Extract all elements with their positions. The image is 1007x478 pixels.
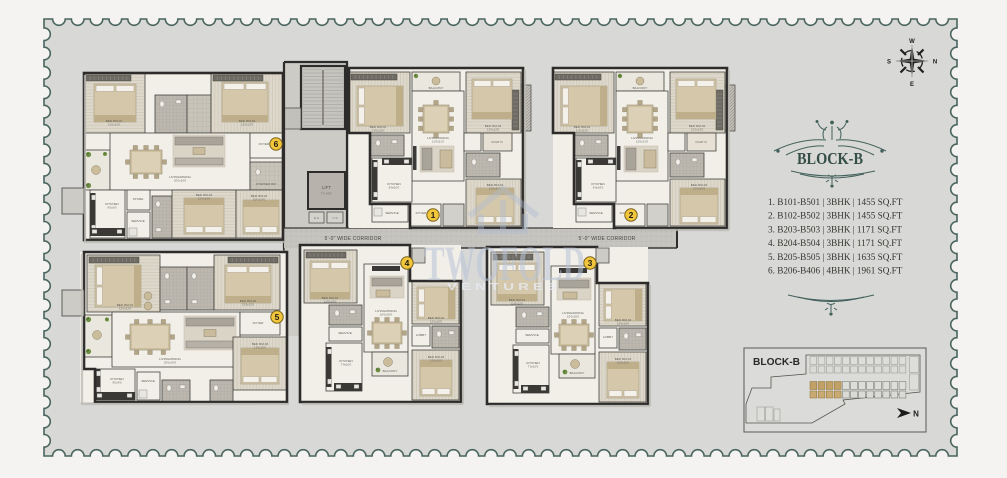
svg-text:6: 6 [274,139,279,149]
svg-text:11'0x21'0: 11'0x21'0 [636,140,648,144]
svg-text:FOYER: FOYER [416,211,427,215]
svg-text:6. B206-B406 | 4BHK | 1961 SQ.: 6. B206-B406 | 4BHK | 1961 SQ.FT [768,266,903,276]
svg-text:5’-0" WIDE CORRIDOR: 5’-0" WIDE CORRIDOR [325,236,382,242]
svg-text:5’-0" WIDE CORRIDOR: 5’-0" WIDE CORRIDOR [579,236,636,242]
svg-text:N: N [933,60,937,66]
svg-text:8'0x10'0: 8'0x10'0 [389,186,400,190]
svg-text:10'0x10'0: 10'0x10'0 [253,198,266,202]
svg-text:12'0x10'0: 12'0x10'0 [617,361,630,365]
svg-text:11'0x10'0: 11'0x10'0 [254,346,266,350]
svg-text:7'1"x9'0": 7'1"x9'0" [321,192,332,196]
svg-text:12'0x10'0: 12'0x10'0 [198,197,211,201]
svg-text:1: 1 [431,210,436,220]
svg-text:9'0x9'0: 9'0x9'0 [113,381,122,385]
svg-text:SERVICE: SERVICE [338,331,352,335]
svg-text:BALCONY: BALCONY [570,371,585,375]
svg-text:SERVICE: SERVICE [141,379,155,383]
svg-text:BALCONY: BALCONY [429,86,444,90]
svg-text:10'0x20'0: 10'0x20'0 [567,315,580,319]
svg-text:SERVICE: SERVICE [589,211,603,215]
svg-text:BLOCK-B: BLOCK-B [753,356,800,368]
svg-text:LOBBY: LOBBY [416,333,426,337]
svg-text:FOYER: FOYER [253,321,264,325]
svg-text:4: 4 [405,258,410,268]
svg-text:BALCONY: BALCONY [633,86,648,90]
svg-text:20'0x10'0: 20'0x10'0 [164,361,177,365]
svg-text:11'0x12'0: 11'0x12'0 [108,123,120,127]
svg-text:3. B203-B503 | 3BHK | 1171 SQ.: 3. B203-B503 | 3BHK | 1171 SQ.FT [768,224,902,234]
svg-text:LIFT: LIFT [322,185,331,190]
svg-text:12'0x10'0: 12'0x10'0 [430,359,443,363]
svg-text:11'0x21'0: 11'0x21'0 [432,140,444,144]
svg-text:12'0x12'0: 12'0x12'0 [691,128,704,132]
svg-text:2. B102-B502 | 3BHK | 1455 SQ.: 2. B102-B502 | 3BHK | 1455 SQ.FT [768,211,903,221]
svg-text:10'0x20'0: 10'0x20'0 [380,313,393,317]
svg-text:12'0x12'0: 12'0x12'0 [119,307,132,311]
svg-text:W: W [909,39,915,45]
svg-text:SERVICE: SERVICE [385,211,399,215]
svg-text:2: 2 [629,210,634,220]
svg-text:12'0x12'0: 12'0x12'0 [487,128,500,132]
svg-text:FOYER: FOYER [259,142,270,146]
svg-text:4. B204-B504 | 3BHK | 1171 SQ.: 4. B204-B504 | 3BHK | 1171 SQ.FT [768,238,902,248]
svg-text:12'0x12'0: 12'0x12'0 [242,303,255,307]
svg-text:BLOCK-B: BLOCK-B [797,149,863,168]
svg-text:COAT D: COAT D [695,140,707,144]
svg-text:3: 3 [588,258,593,268]
svg-text:11'0x12'0: 11'0x12'0 [576,129,588,133]
svg-text:1. B101-B501 | 3BHK | 1455 SQ.: 1. B101-B501 | 3BHK | 1455 SQ.FT [768,197,903,207]
svg-text:7'0x10'0: 7'0x10'0 [528,365,539,369]
svg-text:SERVICE: SERVICE [131,219,145,223]
svg-text:11'0x12'0: 11'0x12'0 [324,300,336,304]
svg-text:POWDER RM: POWDER RM [256,182,276,186]
svg-text:12'0x10'0: 12'0x10'0 [430,320,443,324]
svg-text:V E N T U R E S: V E N T U R E S [447,282,557,293]
svg-text:12'0x12'0: 12'0x12'0 [241,123,254,127]
svg-text:S: S [887,60,891,66]
svg-text:12'0x10'0: 12'0x10'0 [693,187,706,191]
svg-text:STORE: STORE [133,197,144,201]
svg-text:E.S: E.S [314,216,319,220]
svg-text:5. B205-B505 | 3BHK | 1635 SQ.: 5. B205-B505 | 3BHK | 1635 SQ.FT [768,252,903,262]
svg-text:LOBBY: LOBBY [603,335,613,339]
svg-text:7'0x10'0: 7'0x10'0 [341,363,352,367]
svg-text:20'0x10'0: 20'0x10'0 [174,179,187,183]
svg-text:5: 5 [275,312,280,322]
svg-text:E: E [910,82,914,88]
svg-text:11'0x12'0: 11'0x12'0 [372,129,384,133]
svg-text:9'0x9'0: 9'0x9'0 [108,206,117,210]
svg-text:11'0x12'0: 11'0x12'0 [511,302,523,306]
svg-text:N: N [913,410,919,419]
svg-text:C.S: C.S [332,216,337,220]
svg-text:BALCONY: BALCONY [383,369,398,373]
svg-text:SERVICE: SERVICE [525,333,539,337]
svg-text:12'0x10'0: 12'0x10'0 [617,322,630,326]
svg-text:8'0x10'0: 8'0x10'0 [593,186,604,190]
svg-text:COAT D: COAT D [491,140,503,144]
